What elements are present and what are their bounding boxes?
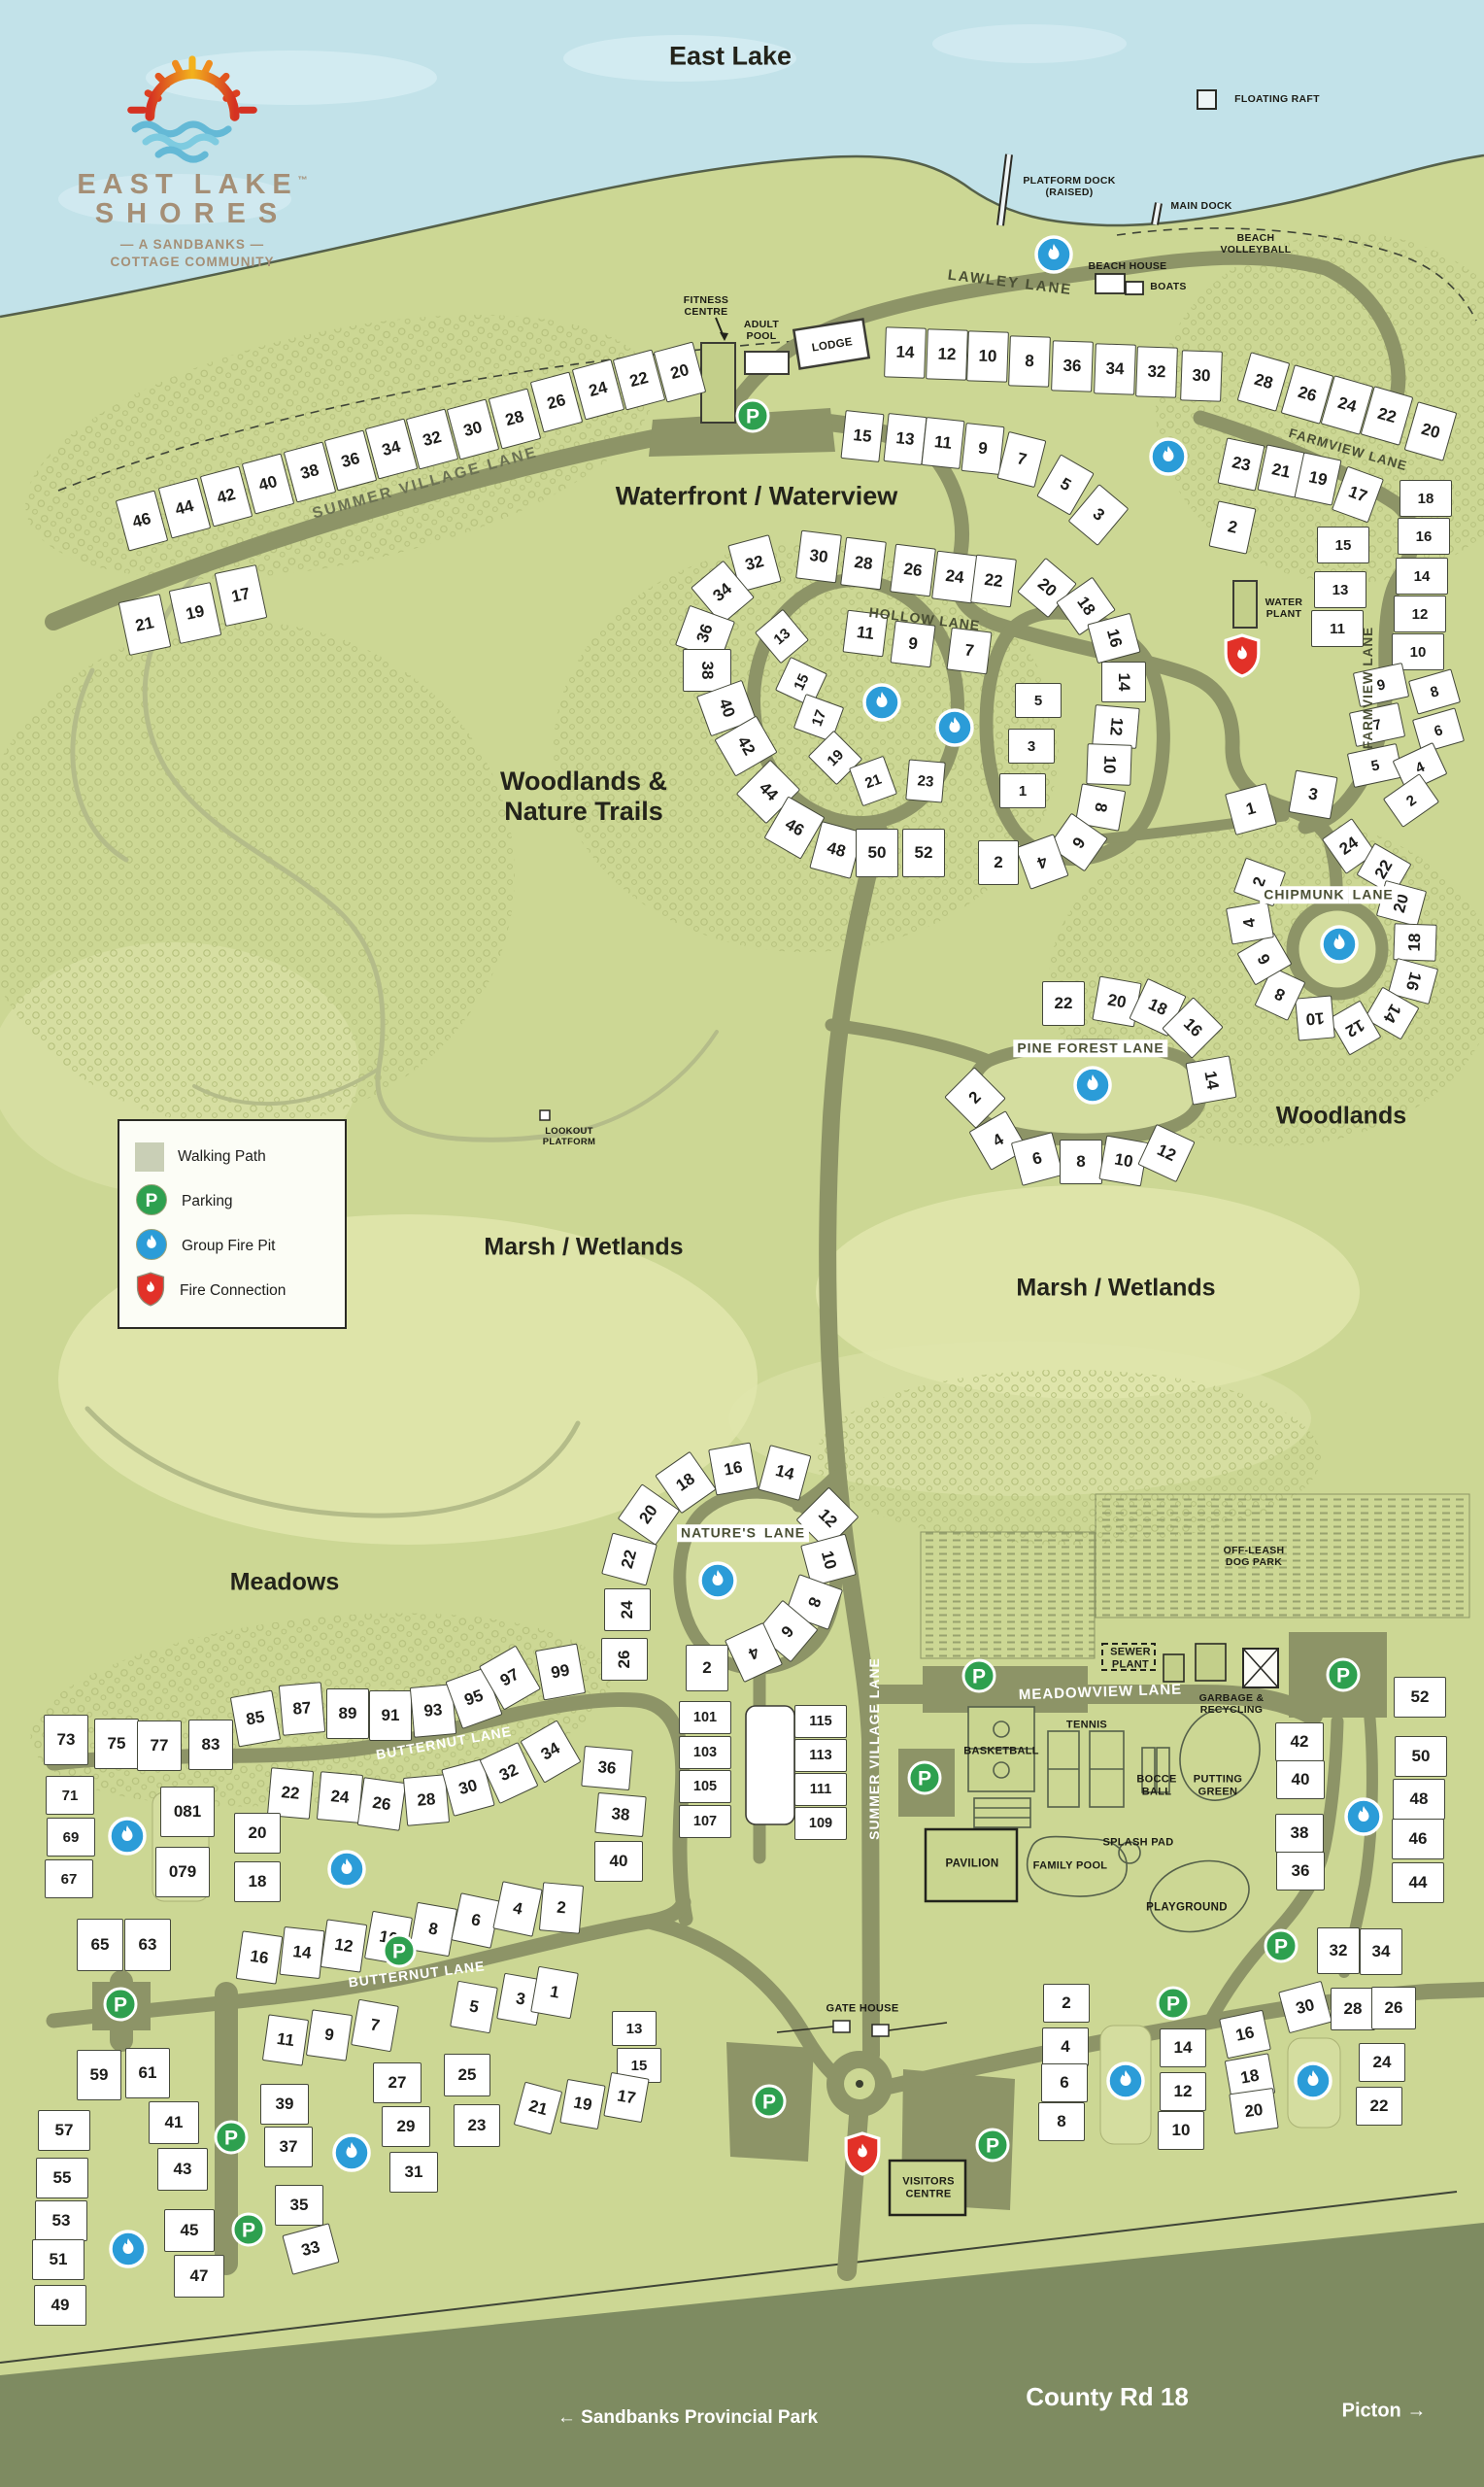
legend-label: Parking: [182, 1193, 233, 1210]
legend-label: Group Fire Pit: [182, 1238, 275, 1255]
logo: EAST LAKE™ SHORES — A SANDBANKS — COTTAG…: [76, 49, 309, 269]
svg-text:P: P: [146, 1191, 158, 1211]
walking-path-swatch: [135, 1142, 164, 1172]
logo-name-line1: EAST LAKE™: [76, 170, 309, 199]
logo-name-line2: SHORES: [76, 199, 309, 228]
legend-row-walking-path: Walking Path: [135, 1135, 329, 1179]
fire-connection-icon: [135, 1271, 166, 1312]
legend-label: Fire Connection: [180, 1282, 286, 1300]
logo-tagline-2: COTTAGE COMMUNITY: [76, 255, 309, 269]
parking-icon: P: [135, 1183, 168, 1221]
legend-row-group-fire-pit: Group Fire Pit: [135, 1224, 329, 1269]
legend: Walking Path P Parking Group Fire Pit Fi…: [118, 1119, 347, 1329]
legend-row-fire-connection: Fire Connection: [135, 1269, 329, 1313]
logo-sun-waves-icon: [115, 49, 270, 165]
map-canvas: 4644424038363432302826242220211917141210…: [0, 0, 1484, 2487]
legend-row-parking: P Parking: [135, 1179, 329, 1224]
group-fire-pit-icon: [135, 1228, 168, 1266]
legend-label: Walking Path: [178, 1148, 266, 1166]
logo-tagline-1: — A SANDBANKS —: [76, 237, 309, 252]
